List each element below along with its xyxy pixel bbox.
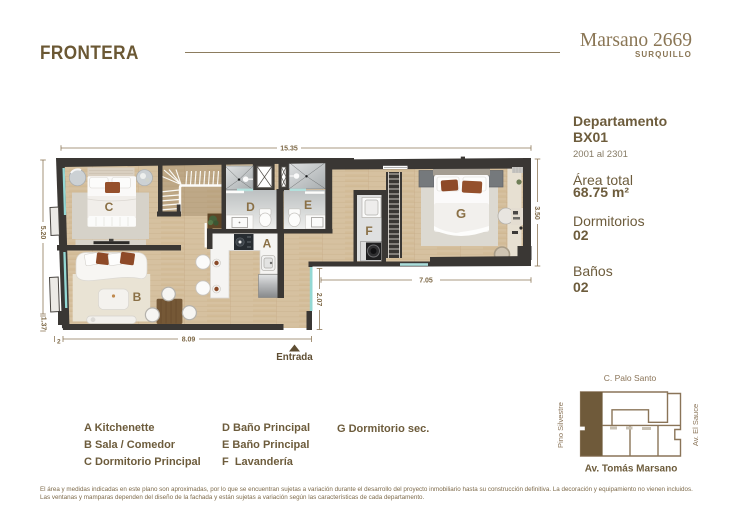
svg-text:G: G <box>456 206 466 221</box>
svg-text:C. Palo Santo: C. Palo Santo <box>604 373 657 383</box>
svg-text:B: B <box>133 290 142 304</box>
svg-text:D: D <box>246 200 255 214</box>
svg-text:2: 2 <box>57 339 61 346</box>
svg-text:3.50: 3.50 <box>533 206 540 220</box>
svg-text:C: C <box>105 200 114 214</box>
svg-text:A: A <box>263 237 272 251</box>
svg-text:Av. El Sauce: Av. El Sauce <box>691 404 700 446</box>
svg-text:2.07: 2.07 <box>315 293 322 307</box>
svg-text:8.09: 8.09 <box>182 337 196 344</box>
svg-text:Pino Silvestre: Pino Silvestre <box>556 402 565 448</box>
svg-text:5.20: 5.20 <box>39 226 46 240</box>
svg-text:Av. Tomás Marsano: Av. Tomás Marsano <box>585 464 678 475</box>
svg-text:15.35: 15.35 <box>280 146 298 153</box>
svg-text:F: F <box>365 224 372 238</box>
svg-text:7.05: 7.05 <box>419 278 433 285</box>
svg-text:E: E <box>304 198 312 212</box>
svg-text:1.37: 1.37 <box>40 317 47 331</box>
svg-text:Entrada: Entrada <box>276 352 313 363</box>
